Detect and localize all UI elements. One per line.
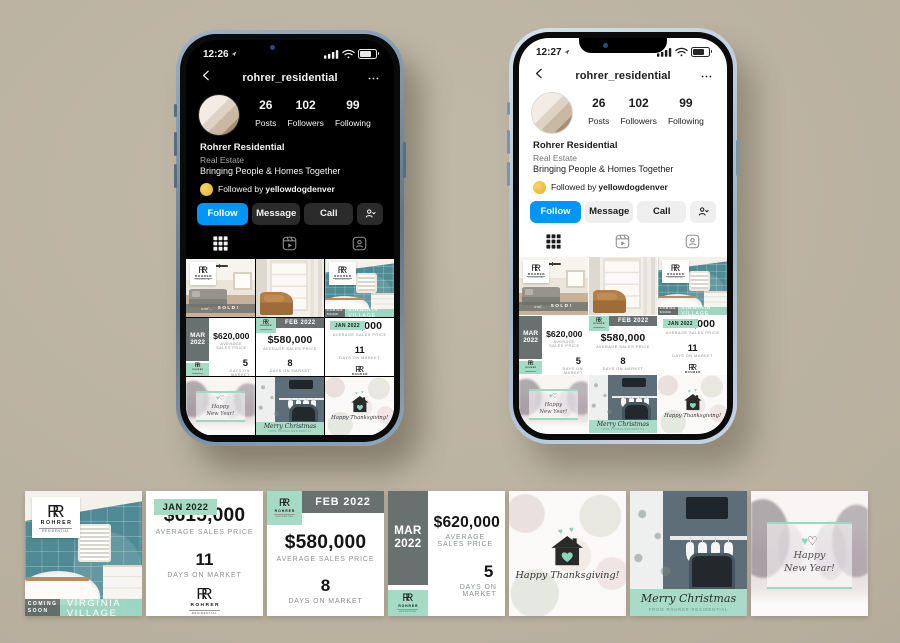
post-new-year: ♥ ♡ Happy New Year! [186, 377, 255, 435]
post-thanksgiving: ♥ ♥ Happy Thanksgiving! [325, 377, 394, 435]
pillow-shape [192, 291, 200, 297]
post-grid: RR ROHRER RESIDENTIAL and... SOLD! RR RO… [519, 257, 727, 433]
tv-shape [686, 497, 728, 518]
hearts-decoration: ♥ ♡ [216, 396, 225, 403]
rohrer-logo: RR ROHRER RESIDENTIAL [194, 265, 212, 282]
logo-card: RR ROHRER RESIDENTIAL [32, 497, 80, 538]
bio-text: Bringing People & Homes Together [533, 164, 713, 176]
profile-stats: 26 Posts 102 Followers 99 Following [577, 97, 715, 129]
stat-following[interactable]: 99 Following [668, 97, 704, 129]
rohrer-monogram: RR [274, 498, 296, 509]
grid-post-christmas[interactable]: Merry Christmas FROM ROHRER RESIDENTIAL [256, 377, 325, 435]
following-count: 99 [668, 97, 704, 111]
status-time: 12:26 [203, 49, 229, 60]
rohrer-monogram: RR [684, 363, 701, 372]
grid-post-christmas[interactable]: Merry Christmas FROM ROHRER RESIDENTIAL [589, 375, 658, 433]
post-jan-stats: JAN 2022 $615,000 AVERAGE SALES PRICE 11… [325, 318, 394, 376]
rohrer-subtitle: RESIDENTIAL [189, 612, 220, 615]
grid-icon [213, 236, 228, 251]
greeting-text: Happy Thanksgiving! [331, 415, 388, 421]
bottom-nav [186, 435, 394, 436]
followed-by-row[interactable]: Followed byyellowdogdenver [519, 176, 727, 194]
greeting-text: Merry Christmas [597, 421, 649, 428]
profile-row: 26 Posts 102 Followers 99 Following [186, 89, 394, 137]
heart-outline-icon: ♡ [552, 393, 558, 400]
stat-followers[interactable]: 102 Followers [620, 97, 656, 129]
action-buttons: Follow Message Call [519, 194, 727, 223]
tab-grid[interactable] [519, 231, 588, 253]
rohrer-logo: RR ROHRER RESIDENTIAL [260, 320, 272, 332]
hearts-decoration: ♥ ♡ [801, 535, 817, 547]
greeting-text: Happy New Year! [538, 402, 569, 416]
rohrer-subtitle: RESIDENTIAL [333, 280, 351, 282]
tab-grid[interactable] [186, 233, 255, 255]
days-label: DAYS ON MARKET [288, 598, 362, 605]
grid-post-virginia[interactable]: RR ROHRER RESIDENTIAL COMING SOON VIRGIN… [658, 257, 727, 315]
sold-banner: and... SOLD! [186, 304, 255, 313]
iphone-mockup-dark: 12:26 rohrer_residential 26 [176, 30, 404, 446]
days-label: DAYS ON MARKET [546, 367, 583, 374]
following-count: 99 [335, 99, 371, 113]
rohrer-subtitle: RESIDENTIAL [260, 330, 272, 331]
greeting-panel: ♥ ♡ Happy New Year! [196, 391, 245, 422]
grid-post-sold[interactable]: RR ROHRER RESIDENTIAL and... SOLD! [519, 257, 588, 315]
rohrer-subtitle: RESIDENTIAL [194, 280, 212, 282]
mantel-shape [612, 396, 657, 398]
tv-shape [622, 378, 647, 388]
month-label: MAR 2022 [523, 330, 538, 344]
power-button [403, 142, 406, 178]
mint-logo-block: RR ROHRER RESIDENTIAL [519, 361, 542, 373]
logo-slot: RR ROHRER RESIDENTIAL [684, 363, 701, 374]
more-options-button[interactable] [364, 72, 380, 85]
heart-outline-icon: ♡ [219, 395, 225, 402]
fireplace-shape [292, 407, 315, 422]
greeting-banner: Merry Christmas FROM ROHRER RESIDENTIAL [256, 422, 325, 435]
rohrer-name: ROHRER [274, 510, 296, 515]
suggest-accounts-button[interactable] [357, 203, 383, 225]
rohrer-subtitle: RESIDENTIAL [525, 372, 537, 373]
stats-body: $580,000 AVERAGE SALES PRICE 8 DAYS ON M… [267, 521, 384, 616]
hearts-decoration: ♥ ♡ [549, 394, 558, 401]
rohrer-subtitle: RESIDENTIAL [39, 530, 72, 533]
post-new-year: ♥ ♡ Happy New Year! [751, 491, 868, 616]
rohrer-subtitle: RESIDENTIAL [593, 328, 605, 329]
notch [246, 40, 334, 55]
days-value: 8 [287, 358, 292, 368]
average-price: $580,000 [601, 332, 646, 344]
grid-post-jan[interactable]: JAN 2022 $615,000 AVERAGE SALES PRICE 11… [658, 316, 727, 374]
post-feb-stats: RR ROHRER RESIDENTIAL FEB 2022 $580,000 … [256, 318, 325, 376]
grid-post-feb[interactable]: RR ROHRER RESIDENTIAL FEB 2022 $580,000 … [589, 316, 658, 374]
stat-following[interactable]: 99 Following [335, 99, 371, 131]
bottom-nav [519, 433, 727, 434]
strip-tile-virginia: RR ROHRER RESIDENTIAL COMING SOON VIRGIN… [25, 491, 142, 616]
rohrer-logo: RR ROHRER RESIDENTIAL [666, 263, 684, 280]
rohrer-logo: RR ROHRER RESIDENTIAL [189, 587, 220, 615]
tagged-icon [352, 236, 367, 251]
tab-tagged[interactable] [325, 233, 394, 255]
christmas-tree-shape [630, 491, 689, 591]
post-feb-stats: RR ROHRER RESIDENTIAL FEB 2022 $580,000 … [589, 316, 658, 374]
stats-body: $580,000 AVERAGE SALES PRICE 8 DAYS ON M… [256, 332, 325, 376]
rohrer-subtitle: RESIDENTIAL [192, 374, 204, 375]
month-sidebar: MAR 2022 [519, 316, 542, 360]
profile-tabs [186, 233, 394, 255]
mantel-shape [670, 536, 747, 540]
stats-body: $580,000 AVERAGE SALES PRICE 8 DAYS ON M… [589, 330, 658, 374]
price-label: AVERAGE SALES PRICE [213, 342, 250, 350]
logo-slot: RR ROHRER RESIDENTIAL [525, 362, 537, 373]
followers-label: Followers [620, 116, 656, 126]
phone-bezel: 12:27 rohrer_residential 26 [513, 32, 733, 440]
rohrer-monogram: RR [39, 503, 72, 520]
tab-reels[interactable] [588, 231, 657, 253]
mint-logo-block: RR ROHRER RESIDENTIAL [186, 363, 209, 375]
username-title: rohrer_residential [549, 70, 697, 82]
days-label: DAYS ON MARKET [672, 354, 713, 358]
days-value: 8 [321, 576, 330, 596]
wifi-icon [342, 49, 355, 59]
greeting-subtext: FROM ROHRER RESIDENTIAL [601, 429, 645, 431]
more-options-button[interactable] [697, 70, 713, 83]
greeting-subtext: FROM ROHRER RESIDENTIAL [268, 431, 312, 433]
coming-line2: SOON [28, 608, 58, 615]
location-label: VIRGINIA VILLAGE [345, 309, 394, 317]
stat-posts[interactable]: 26 Posts [255, 99, 276, 131]
sold-label: SOLD! [218, 306, 240, 311]
call-button[interactable]: Call [637, 201, 686, 223]
logo-slot: RR ROHRER RESIDENTIAL [192, 364, 204, 375]
price-label: AVERAGE SALES PRICE [666, 331, 720, 335]
rohrer-logo: RR ROHRER RESIDENTIAL [333, 265, 351, 282]
days-value: 8 [620, 356, 625, 366]
greeting-panel: ♥ ♡ Happy New Year! [529, 389, 578, 420]
back-button[interactable] [200, 69, 216, 87]
greeting-content: ♥ ♥ Happy Thanksgiving! [509, 491, 626, 616]
month-tab: JAN 2022 [330, 321, 364, 330]
average-price: $620,000 [213, 331, 250, 341]
window-shape [358, 275, 375, 291]
rohrer-logo: RR ROHRER RESIDENTIAL [684, 363, 701, 374]
stats-body: $620,000 AVERAGE SALES PRICE 5 DAYS ON M… [542, 316, 587, 374]
following-label: Following [335, 118, 371, 128]
followed-by-prefix: Followed by [218, 184, 263, 194]
location-arrow-icon [564, 49, 570, 55]
closet-photo [589, 257, 658, 315]
month-line2: 2022 [523, 337, 538, 344]
rohrer-logo: RR ROHRER RESIDENTIAL [527, 263, 545, 280]
logo-card: RR ROHRER RESIDENTIAL [523, 260, 549, 283]
stats-body: $620,000 AVERAGE SALES PRICE 5 DAYS ON M… [428, 491, 505, 616]
greeting-text: Happy New Year! [205, 404, 236, 418]
post-jan-stats: JAN 2022 $615,000 AVERAGE SALES PRICE 11… [658, 316, 727, 374]
post-thanksgiving: ♥ ♥ Happy Thanksgiving! [658, 375, 727, 433]
post-mar-stats: MAR 2022 RR ROHRER RESIDENTIAL $620,000 … [186, 318, 255, 376]
greeting-subtext: FROM ROHRER RESIDENTIAL [649, 607, 728, 612]
rohrer-monogram: RR [397, 593, 418, 604]
average-price: $620,000 [434, 514, 497, 532]
chevron-left-icon [200, 69, 213, 82]
profile-header: rohrer_residential [519, 61, 727, 87]
rohrer-subtitle: RESIDENTIAL [397, 611, 418, 613]
profile-row: 26 Posts 102 Followers 99 Following [519, 87, 727, 135]
sold-banner: and... SOLD! [519, 302, 588, 311]
days-label: DAYS ON MARKET [213, 369, 250, 376]
days-value: 5 [576, 356, 581, 366]
post-mar-stats: MAR 2022 RR ROHRER RESIDENTIAL $620,000 … [388, 491, 505, 616]
rohrer-name: ROHRER [39, 521, 72, 529]
sold-label: SOLD! [551, 304, 573, 309]
posts-count: 26 [588, 97, 609, 111]
volume-down-button [507, 162, 510, 186]
ellipsis-icon [367, 72, 380, 85]
status-icons [657, 47, 710, 58]
following-label: Following [668, 116, 704, 126]
rohrer-monogram: RR [194, 265, 212, 274]
location-label: VIRGINIA VILLAGE [678, 307, 727, 315]
grid-post-mar[interactable]: MAR 2022 RR ROHRER RESIDENTIAL $620,000 … [519, 316, 588, 374]
status-time-group: 12:26 [203, 49, 237, 60]
profile-stats: 26 Posts 102 Followers 99 Following [244, 99, 382, 131]
display-name: Rohrer Residential [533, 140, 713, 153]
days-label: DAYS ON MARKET [603, 367, 644, 371]
greeting-text: Happy New Year! [783, 550, 835, 575]
suggest-accounts-button[interactable] [690, 201, 716, 223]
bio-section: Rohrer Residential Real Estate Bringing … [186, 137, 394, 178]
rohrer-name: ROHRER [397, 605, 418, 610]
armchair-shape [260, 292, 292, 315]
price-label: AVERAGE SALES PRICE [277, 556, 375, 563]
followers-count: 102 [620, 97, 656, 111]
camera-dot [270, 45, 275, 50]
grid-post-thanksgiving[interactable]: ♥ ♥ Happy Thanksgiving! [325, 377, 394, 435]
rohrer-subtitle: RESIDENTIAL [527, 278, 545, 280]
coming-line2: SOON [660, 311, 676, 315]
message-button[interactable]: Message [585, 201, 634, 223]
tab-tagged[interactable] [658, 231, 727, 253]
days-value: 5 [484, 562, 493, 582]
price-label: AVERAGE SALES PRICE [263, 347, 317, 351]
profile-avatar[interactable] [531, 92, 573, 134]
month-line2: 2022 [190, 339, 205, 346]
greeting-text: Happy Thanksgiving! [516, 570, 620, 581]
category-label: Real Estate [533, 153, 713, 164]
mint-logo-block: RR ROHRER RESIDENTIAL [256, 318, 277, 334]
grid-post-feb[interactable]: RR ROHRER RESIDENTIAL FEB 2022 $580,000 … [256, 318, 325, 376]
month-sidebar: MAR 2022 [186, 318, 209, 362]
phone-screen: 12:26 rohrer_residential 26 [186, 40, 394, 436]
grid-post-closet[interactable] [589, 257, 658, 315]
greeting-content: ♥ ♥ Happy Thanksgiving! [658, 375, 727, 433]
post-christmas: Merry Christmas FROM ROHRER RESIDENTIAL [589, 375, 658, 433]
tub-tray-shape [26, 577, 89, 581]
post-virginia-village: RR ROHRER RESIDENTIAL COMING SOON VIRGIN… [658, 257, 727, 315]
posts-count: 26 [255, 99, 276, 113]
strip-tile-jan: JAN 2022 $615,000 AVERAGE SALES PRICE 11… [146, 491, 263, 616]
grid-post-newyear[interactable]: ♥ ♡ Happy New Year! [186, 377, 255, 435]
stat-followers[interactable]: 102 Followers [287, 99, 323, 131]
strip-tile-christmas: Merry Christmas FROM ROHRER RESIDENTIAL [630, 491, 747, 616]
username-title: rohrer_residential [216, 72, 364, 84]
month-tab: JAN 2022 [663, 319, 697, 328]
rohrer-monogram: RR [527, 263, 545, 272]
month-sidebar: MAR 2022 [388, 491, 428, 585]
days-value: 11 [688, 343, 698, 353]
fireplace-shape [625, 405, 648, 420]
location-label: VIRGINIA VILLAGE [60, 599, 142, 616]
christmas-tree-shape [589, 375, 623, 421]
price-label: AVERAGE SALES PRICE [156, 529, 254, 536]
logo-slot: RR ROHRER RESIDENTIAL [397, 593, 418, 613]
power-button [736, 140, 739, 176]
instagram-profile-screen: 12:26 rohrer_residential 26 [186, 40, 394, 436]
average-price: $580,000 [285, 532, 367, 554]
month-bar: FEB 2022 [276, 318, 324, 328]
rohrer-logo: RR ROHRER RESIDENTIAL [351, 365, 368, 376]
greeting-text: Merry Christmas [264, 423, 316, 430]
grid-post-jan[interactable]: JAN 2022 $615,000 AVERAGE SALES PRICE 11… [325, 318, 394, 376]
camera-dot [603, 43, 608, 48]
status-time-group: 12:27 [536, 47, 570, 58]
call-button[interactable]: Call [304, 203, 353, 225]
greeting-banner: Merry Christmas FROM ROHRER RESIDENTIAL [630, 589, 747, 617]
rohrer-subtitle: RESIDENTIAL [666, 278, 684, 280]
stocking-shape [288, 400, 293, 409]
grid-post-mar[interactable]: MAR 2022 RR ROHRER RESIDENTIAL $620,000 … [186, 318, 255, 376]
days-label: DAYS ON MARKET [434, 584, 497, 598]
days-label: DAYS ON MARKET [167, 572, 241, 579]
days-label: DAYS ON MARKET [270, 369, 311, 373]
month-tab: JAN 2022 [154, 499, 217, 515]
fireplace-shape [692, 556, 732, 587]
month-line1: MAR [190, 332, 205, 339]
vanity-shape [103, 565, 142, 599]
followers-label: Followers [287, 118, 323, 128]
greeting-panel: ♥ ♡ Happy New Year! [767, 522, 851, 588]
followed-by-account[interactable]: yellowdogdenver [265, 184, 334, 194]
grid-post-sold[interactable]: RR ROHRER RESIDENTIAL and... SOLD! [186, 259, 255, 317]
posts-label: Posts [255, 118, 276, 128]
days-label: DAYS ON MARKET [339, 356, 380, 360]
rohrer-name: ROHRER [351, 374, 368, 376]
battery-icon [691, 47, 710, 58]
logo-card: RR ROHRER RESIDENTIAL [190, 262, 216, 285]
phone-bezel: 12:26 rohrer_residential 26 [180, 34, 400, 442]
heart-outline-icon: ♡ [807, 534, 818, 548]
month-label: MAR 2022 [394, 525, 421, 551]
rohrer-logo: RR ROHRER RESIDENTIAL [593, 318, 605, 330]
volume-up-button [174, 132, 177, 156]
mute-switch [174, 104, 177, 117]
message-button[interactable]: Message [252, 203, 301, 225]
post-virginia-village: RR ROHRER RESIDENTIAL COMING SOON VIRGIN… [25, 491, 142, 616]
strip-tile-mar: MAR 2022 RR ROHRER RESIDENTIAL $620,000 … [388, 491, 505, 616]
average-price: $580,000 [268, 334, 313, 346]
person-add-icon [697, 205, 710, 218]
followers-count: 102 [287, 99, 323, 113]
logo-slot: RR ROHRER RESIDENTIAL [274, 498, 296, 518]
category-label: Real Estate [200, 155, 380, 166]
stats-body: $620,000 AVERAGE SALES PRICE 5 DAYS ON M… [209, 318, 254, 376]
greeting-banner: Merry Christmas FROM ROHRER RESIDENTIAL [589, 420, 658, 433]
curtain-shape [314, 259, 324, 317]
tab-reels[interactable] [255, 233, 324, 255]
rohrer-monogram: RR [189, 587, 220, 603]
rohrer-logo: RR ROHRER RESIDENTIAL [192, 364, 204, 375]
month-bar: FEB 2022 [609, 316, 657, 326]
status-icons [324, 49, 377, 60]
post-feb-stats: RR ROHRER RESIDENTIAL FEB 2022 $580,000 … [267, 491, 384, 616]
window-shape [691, 273, 708, 289]
back-button[interactable] [533, 67, 549, 85]
month-line1: MAR [523, 330, 538, 337]
logo-card: RR ROHRER RESIDENTIAL [329, 262, 355, 285]
profile-avatar[interactable] [198, 94, 240, 136]
post-christmas: Merry Christmas FROM ROHRER RESIDENTIAL [630, 491, 747, 616]
coming-soon-label: COMING SOON [25, 599, 60, 616]
post-sold: RR ROHRER RESIDENTIAL and... SOLD! [186, 259, 255, 317]
post-jan-stats: JAN 2022 $615,000 AVERAGE SALES PRICE 11… [146, 491, 263, 616]
grid-post-closet[interactable] [256, 259, 325, 317]
rohrer-logo: RR ROHRER RESIDENTIAL [39, 503, 72, 534]
wifi-icon [675, 47, 688, 57]
logo-slot: RR ROHRER RESIDENTIAL [593, 318, 605, 330]
post-new-year: ♥ ♡ Happy New Year! [519, 375, 588, 433]
logo-card: RR ROHRER RESIDENTIAL [662, 260, 688, 283]
person-add-icon [364, 207, 377, 220]
armchair-shape [593, 290, 625, 313]
mute-switch [507, 102, 510, 115]
followed-by-row[interactable]: Followed byyellowdogdenver [186, 178, 394, 196]
price-label: AVERAGE SALES PRICE [596, 345, 650, 349]
banner: COMING SOON VIRGINIA VILLAGE [658, 307, 727, 315]
month-line2: 2022 [394, 538, 421, 551]
window-shape [568, 272, 582, 285]
follow-button[interactable]: Follow [530, 201, 581, 223]
coming-line1: COMING [28, 601, 58, 608]
banner: COMING SOON VIRGINIA VILLAGE [25, 599, 142, 616]
mint-logo-block: RR ROHRER RESIDENTIAL [589, 316, 610, 332]
mint-logo-block: RR ROHRER RESIDENTIAL [267, 491, 302, 525]
rohrer-logo: RR ROHRER RESIDENTIAL [525, 362, 537, 373]
rohrer-monogram: RR [666, 263, 684, 272]
profile-tabs [519, 231, 727, 253]
stat-posts[interactable]: 26 Posts [588, 97, 609, 129]
grid-post-thanksgiving[interactable]: ♥ ♥ Happy Thanksgiving! [658, 375, 727, 433]
post-virginia-village: RR ROHRER RESIDENTIAL COMING SOON VIRGIN… [325, 259, 394, 317]
greeting-text: Merry Christmas [641, 592, 736, 605]
followed-by-text: Followed byyellowdogdenver [218, 184, 335, 194]
follow-button[interactable]: Follow [197, 203, 248, 225]
coming-line2: SOON [327, 313, 343, 317]
action-buttons: Follow Message Call [186, 196, 394, 225]
volume-down-button [174, 164, 177, 188]
phone-screen: 12:27 rohrer_residential 26 [519, 38, 727, 434]
followed-by-text: Followed byyellowdogdenver [551, 182, 668, 192]
logo-slot: RR ROHRER RESIDENTIAL [260, 320, 272, 332]
reels-icon [615, 234, 630, 249]
grid-post-virginia[interactable]: RR ROHRER RESIDENTIAL COMING SOON VIRGIN… [325, 259, 394, 317]
rohrer-logo: RR ROHRER RESIDENTIAL [397, 593, 418, 613]
follower-avatar [533, 181, 546, 194]
rohrer-subtitle: RESIDENTIAL [274, 516, 296, 518]
grid-post-newyear[interactable]: ♥ ♡ Happy New Year! [519, 375, 588, 433]
followed-by-prefix: Followed by [551, 182, 596, 192]
house-heart-icon [551, 536, 583, 566]
curtain-shape [647, 257, 657, 315]
followed-by-account[interactable]: yellowdogdenver [598, 182, 667, 192]
